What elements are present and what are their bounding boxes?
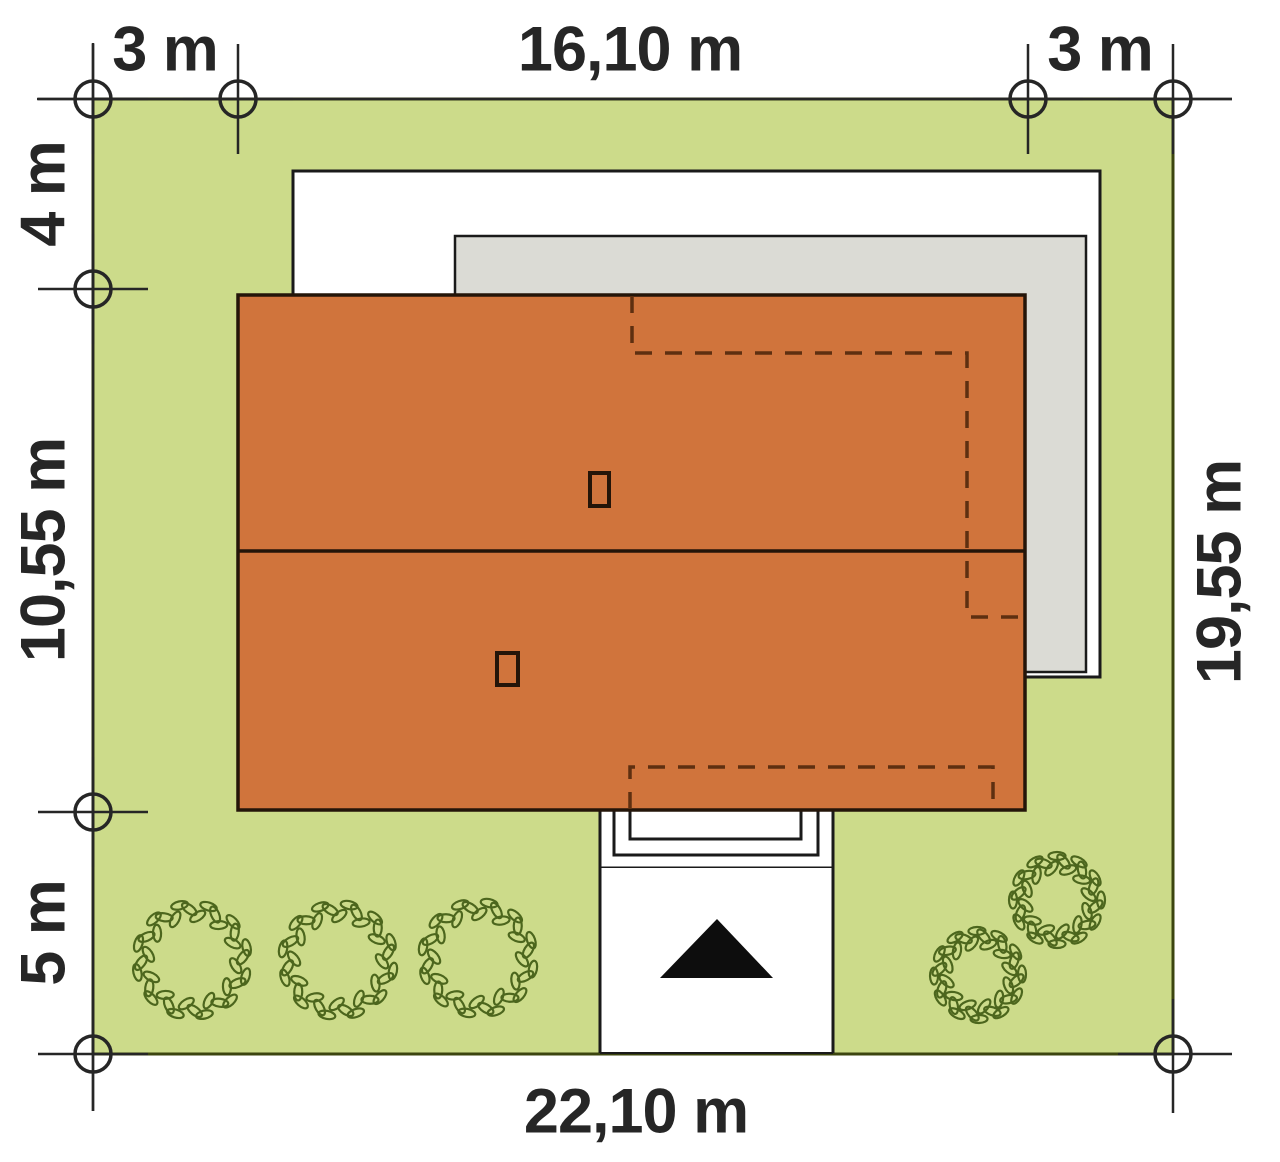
dim-label-top-setback-left: 3 m xyxy=(112,19,218,82)
dim-label-plot-width: 22,10 m xyxy=(524,1081,748,1144)
site-plan-drawing xyxy=(0,0,1280,1162)
chimney-2 xyxy=(497,653,518,685)
dim-label-top-setback-right: 3 m xyxy=(1047,19,1153,82)
chimney-1 xyxy=(590,473,609,506)
dim-label-house-depth: 10,55 m xyxy=(13,438,76,662)
dim-label-setback-back: 4 m xyxy=(13,141,76,247)
dim-label-plot-depth: 19,55 m xyxy=(1189,460,1252,684)
site-plan: 3 m 16,10 m 3 m 4 m 10,55 m 5 m 19,55 m … xyxy=(0,0,1280,1162)
dim-label-house-width: 16,10 m xyxy=(518,19,742,82)
dim-label-setback-front: 5 m xyxy=(13,880,76,986)
